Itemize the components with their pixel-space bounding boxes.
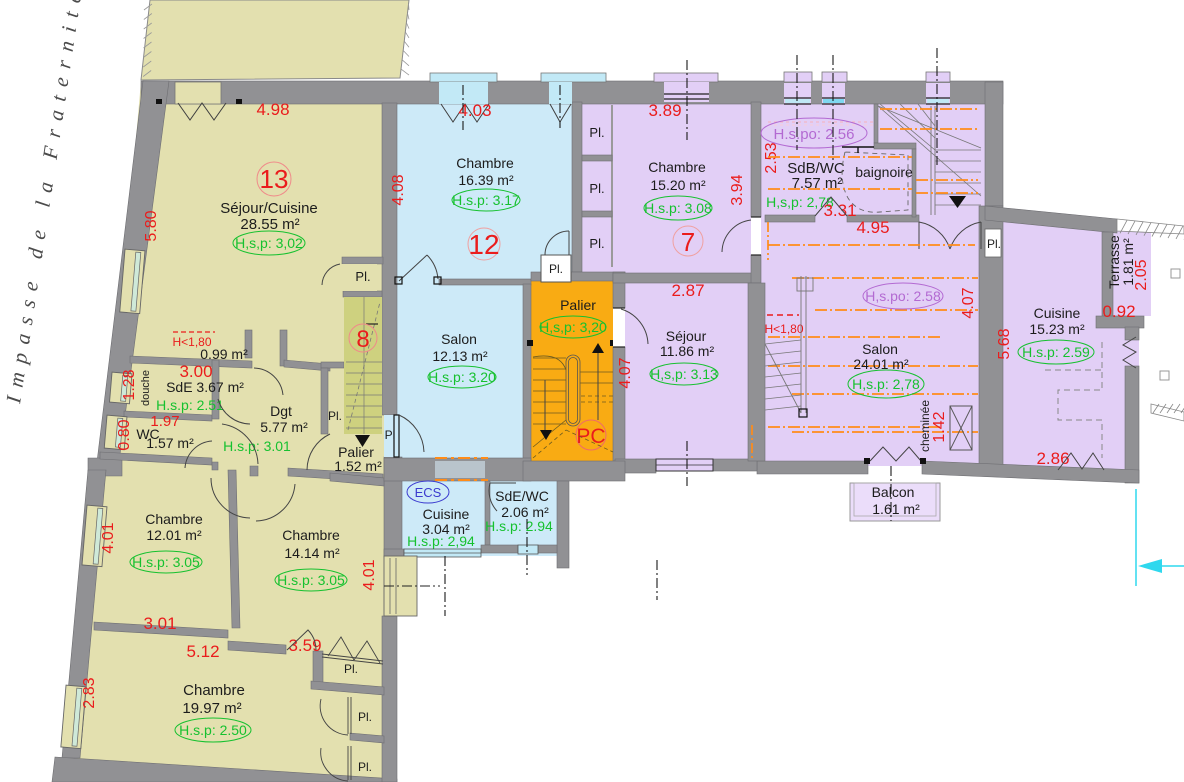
svg-text:12.01 m²: 12.01 m²: [146, 527, 202, 543]
svg-text:SdE/WC: SdE/WC: [495, 488, 549, 504]
svg-text:4.07: 4.07: [960, 287, 977, 318]
svg-text:15.20 m²: 15.20 m²: [650, 177, 706, 193]
svg-text:2.53: 2.53: [763, 142, 780, 173]
svg-text:H,s,p: 3,02: H,s,p: 3,02: [235, 235, 303, 251]
svg-text:ECS: ECS: [415, 485, 442, 500]
svg-text:5.77 m²: 5.77 m²: [260, 419, 308, 435]
svg-text:24.01 m²: 24.01 m²: [853, 356, 909, 372]
svg-text:0.92: 0.92: [1102, 302, 1135, 321]
svg-text:Pl.: Pl.: [549, 262, 563, 276]
svg-text:13: 13: [260, 164, 289, 194]
svg-text:Chambre: Chambre: [648, 159, 706, 175]
svg-text:2.05: 2.05: [1133, 259, 1150, 290]
svg-text:4.98: 4.98: [256, 100, 289, 119]
svg-text:Balcon: Balcon: [872, 484, 915, 500]
svg-text:1.28: 1.28: [121, 369, 138, 400]
svg-text:Pl.: Pl.: [589, 236, 604, 251]
svg-text:H,s,p: 3.13: H,s,p: 3.13: [650, 366, 718, 382]
svg-text:H,s.po: 2.58: H,s.po: 2.58: [865, 288, 941, 304]
svg-text:2.87: 2.87: [671, 281, 704, 300]
svg-text:4.08: 4.08: [390, 174, 407, 205]
svg-text:15.23 m²: 15.23 m²: [1029, 321, 1085, 337]
svg-text:12: 12: [468, 229, 499, 260]
svg-text:8: 8: [356, 326, 369, 353]
svg-text:0.99 m²: 0.99 m²: [200, 346, 248, 362]
svg-text:Impasse de la Fraternité: Impasse de la Fraternité: [1, 0, 87, 406]
svg-text:3.31: 3.31: [823, 201, 856, 220]
svg-text:4.01: 4.01: [361, 559, 378, 590]
svg-text:1.57 m²: 1.57 m²: [146, 435, 194, 451]
svg-text:Pl.: Pl.: [589, 125, 604, 140]
svg-text:Pl.: Pl.: [355, 269, 370, 284]
svg-text:11.86 m²: 11.86 m²: [660, 343, 715, 359]
svg-text:Pl.: Pl.: [987, 237, 1001, 251]
svg-text:16.39 m²: 16.39 m²: [458, 172, 514, 188]
svg-text:baignoire: baignoire: [855, 164, 913, 180]
svg-text:4.07: 4.07: [617, 357, 634, 388]
svg-text:H.s.p: 2.50: H.s.p: 2.50: [179, 722, 247, 738]
svg-text:Séjour: Séjour: [666, 328, 707, 344]
svg-text:H.s.p: 3.20: H.s.p: 3.20: [428, 369, 496, 385]
svg-text:H.s.p: 2.51: H.s.p: 2.51: [156, 397, 224, 413]
svg-text:Palier: Palier: [560, 297, 596, 313]
svg-text:1.52 m²: 1.52 m²: [334, 458, 382, 474]
svg-text:H.s.p: 2.94: H.s.p: 2.94: [485, 518, 553, 534]
svg-text:Salon: Salon: [862, 341, 898, 357]
svg-text:14.14 m²: 14.14 m²: [284, 545, 340, 561]
svg-text:1.97: 1.97: [150, 413, 179, 430]
svg-text:H<1,80: H<1,80: [764, 322, 803, 336]
svg-text:3.89: 3.89: [648, 101, 681, 120]
svg-text:5.68: 5.68: [996, 328, 1013, 359]
svg-text:Pl.: Pl.: [358, 710, 372, 724]
svg-text:Cuisine: Cuisine: [423, 506, 470, 522]
svg-text:12.13 m²: 12.13 m²: [432, 348, 488, 364]
svg-text:Chambre: Chambre: [456, 155, 514, 171]
svg-text:5.80: 5.80: [143, 210, 160, 241]
svg-text:Pl.: Pl.: [328, 409, 342, 423]
svg-text:Pl.: Pl.: [589, 181, 604, 196]
svg-text:4.95: 4.95: [856, 218, 889, 237]
svg-text:H.s.p: 3.17: H.s.p: 3.17: [452, 192, 520, 208]
svg-text:Pl.: Pl.: [344, 662, 358, 676]
svg-text:3.01: 3.01: [143, 614, 176, 633]
svg-text:19.97 m²: 19.97 m²: [182, 700, 241, 717]
svg-text:H.s.p: 3.01: H.s.p: 3.01: [223, 438, 291, 454]
svg-text:H.s.p: 3.05: H.s.p: 3.05: [132, 554, 200, 570]
svg-text:5.12: 5.12: [186, 642, 219, 661]
svg-text:Chambre: Chambre: [145, 511, 203, 527]
svg-text:Chambre: Chambre: [282, 527, 340, 543]
svg-text:H,s.p: 2,78: H,s.p: 2,78: [852, 376, 920, 392]
svg-text:Séjour/Cuisine: Séjour/Cuisine: [220, 200, 318, 217]
svg-text:H,s,p: 3,20: H,s,p: 3,20: [539, 319, 607, 335]
svg-text:2.86: 2.86: [1036, 449, 1069, 468]
svg-text:H.s.p: 2,94: H.s.p: 2,94: [407, 533, 475, 549]
svg-text:H.s.p: 3.05: H.s.p: 3.05: [277, 572, 345, 588]
svg-text:H.s.po: 2.56: H.s.po: 2.56: [774, 126, 855, 143]
svg-text:H.s.p: 3.08: H.s.p: 3.08: [644, 200, 712, 216]
svg-text:7: 7: [681, 227, 695, 257]
svg-text:Salon: Salon: [441, 331, 477, 347]
svg-text:4.01: 4.01: [100, 522, 117, 553]
svg-text:0.80: 0.80: [116, 419, 133, 450]
svg-text:1.61 m²: 1.61 m²: [872, 501, 920, 517]
svg-text:cheminée: cheminée: [918, 400, 932, 452]
svg-text:SdE 3.67 m²: SdE 3.67 m²: [166, 379, 244, 395]
svg-text:3.94: 3.94: [729, 174, 746, 205]
svg-text:Chambre: Chambre: [183, 682, 245, 699]
svg-text:3.59: 3.59: [288, 636, 321, 655]
svg-text:Cuisine: Cuisine: [1034, 305, 1081, 321]
svg-text:douche: douche: [140, 370, 152, 406]
svg-text:Pl.: Pl.: [358, 760, 372, 774]
svg-text:H.s.p: 2.59: H.s.p: 2.59: [1022, 344, 1090, 360]
svg-text:1.42: 1.42: [931, 411, 948, 442]
svg-text:2.83: 2.83: [81, 677, 98, 708]
svg-text:Dgt: Dgt: [270, 403, 292, 419]
svg-text:28.55 m²: 28.55 m²: [240, 216, 299, 233]
